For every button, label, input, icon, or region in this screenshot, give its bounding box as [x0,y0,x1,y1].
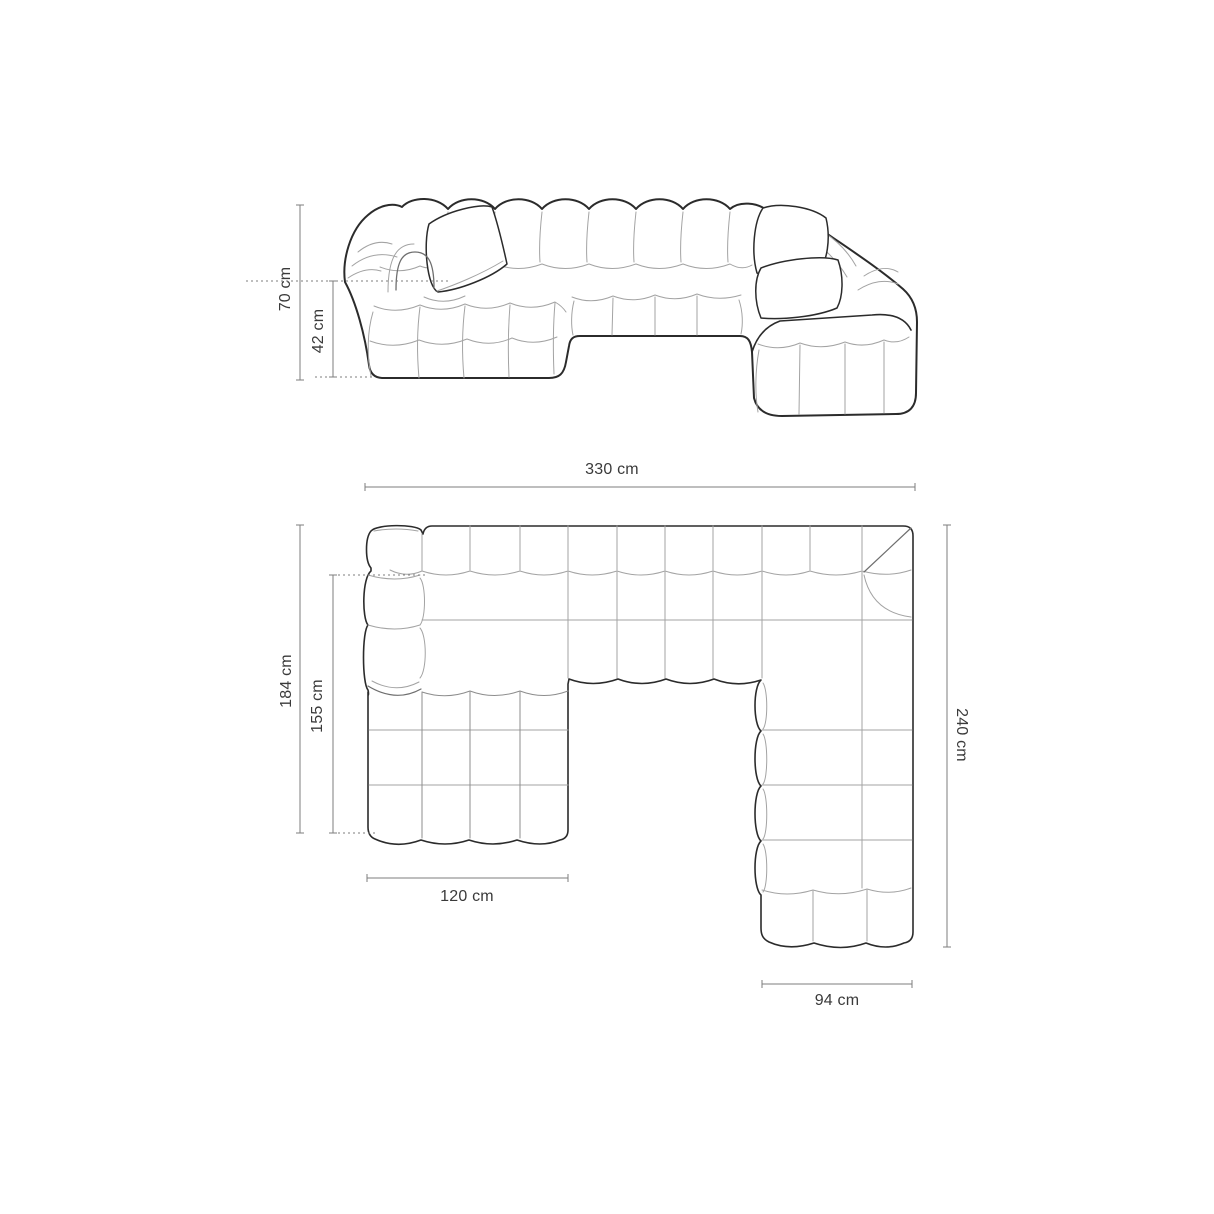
diagram-canvas: 70 cm 42 cm 330 cm 184 cm 155 cm 240 cm … [0,0,1214,1214]
sofa-dimension-drawing [0,0,1214,1214]
front-seat-height-label: 42 cm [311,309,327,354]
plan-right-depth-label: 240 cm [953,708,969,762]
top-plan-drawing [364,526,914,948]
plan-right-width-label: 94 cm [815,993,860,1009]
front-elevation-drawing [344,199,917,416]
plan-chaise-length-label: 155 cm [310,679,326,733]
plan-left-depth-label: 184 cm [279,654,295,708]
plan-total-width-label: 330 cm [585,462,639,478]
front-total-height-label: 70 cm [278,267,294,312]
plan-chaise-width-label: 120 cm [440,889,494,905]
